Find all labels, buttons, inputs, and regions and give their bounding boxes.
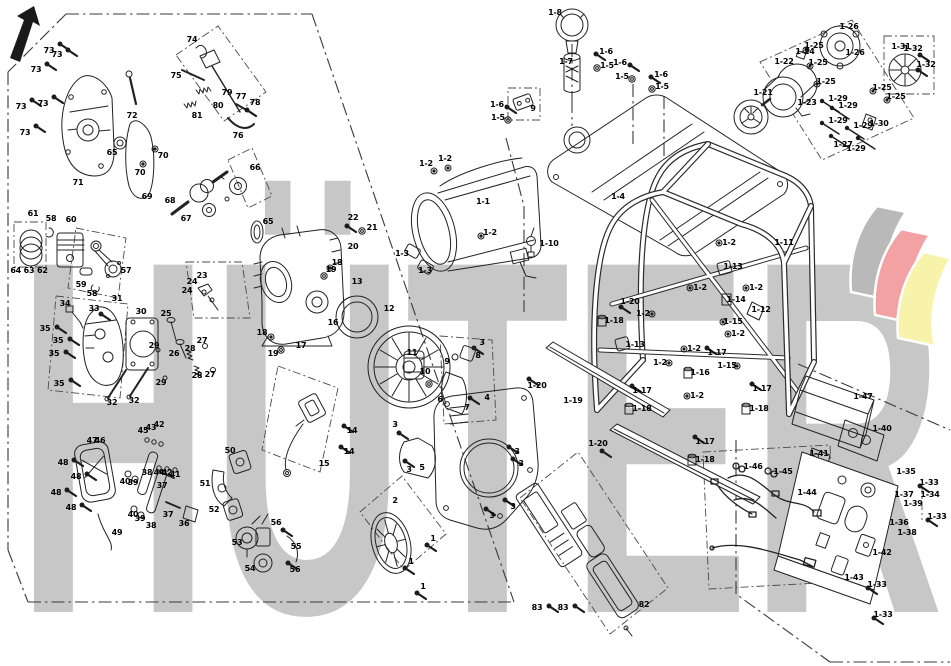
boltl-glyph (829, 134, 848, 147)
governor-linkage-drawing (182, 45, 254, 128)
bolt-glyph (52, 95, 63, 103)
nut-glyph (803, 47, 809, 53)
back-arrow-icon[interactable] (10, 6, 40, 62)
boltl-glyph (830, 106, 849, 119)
alternator-drawing (734, 26, 921, 134)
bolt-glyph (649, 75, 660, 83)
boltl-glyph (820, 121, 839, 134)
bolt-glyph (245, 108, 256, 116)
washer-glyph (629, 76, 635, 82)
nut-glyph (807, 63, 813, 69)
svg-text:HÜTER: HÜTER (16, 156, 944, 666)
bolt-glyph (628, 63, 639, 71)
bolt-glyph (918, 53, 929, 61)
bolt-glyph (594, 52, 605, 60)
bolt-glyph (45, 62, 56, 70)
bolt-glyph (505, 105, 516, 113)
bolt-glyph (30, 98, 41, 106)
washer-glyph (594, 65, 600, 71)
boltl-glyph (845, 126, 864, 139)
hueter-watermark: HÜTER (16, 156, 944, 666)
bolt-glyph (66, 48, 77, 56)
parts-diagram-sheet: HÜTER (0, 0, 951, 666)
bolt-glyph (34, 124, 45, 132)
nut-glyph (870, 88, 876, 94)
washer-glyph (649, 86, 655, 92)
nut-glyph (884, 97, 890, 103)
